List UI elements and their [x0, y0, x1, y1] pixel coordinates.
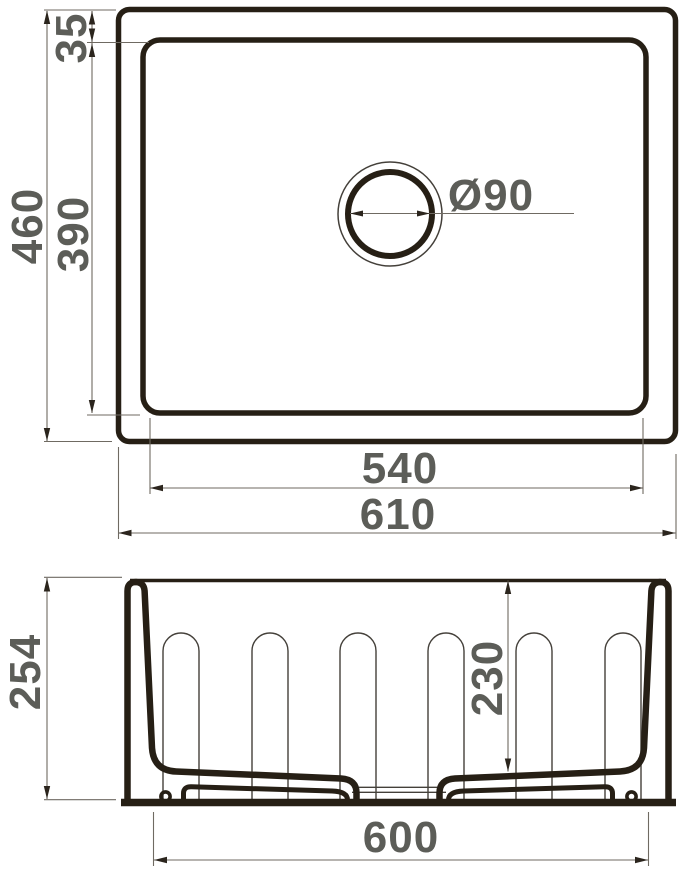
dim-label-overall-height: 254: [1, 634, 50, 710]
dimension-bowl-width: 540: [150, 444, 643, 493]
dimension-bowl-depth: 390: [49, 43, 98, 413]
dimension-rim-offset: 35: [47, 11, 96, 63]
arrow-up: [44, 578, 50, 592]
dim-label-rim-offset: 35: [47, 13, 96, 64]
base-lip-right: [449, 787, 613, 800]
drain-arrow-right: [417, 211, 430, 217]
flute-outline: [605, 633, 641, 801]
arrow-down: [44, 428, 50, 441]
base-lip-left: [184, 787, 348, 800]
left-wall-profile: [128, 582, 357, 802]
arrow-left: [119, 530, 132, 536]
arrow-up: [505, 581, 511, 595]
dimension-base-width: 600: [154, 813, 648, 863]
dim-label-overall-depth: 460: [3, 188, 52, 264]
drain-diameter-label: Ø90: [448, 171, 534, 220]
technical-drawing-canvas: Ø90 460 35 390: [0, 0, 681, 875]
dimension-overall-width: 610: [119, 490, 676, 539]
arrow-right: [635, 857, 648, 863]
bowl-inner-rect: [143, 40, 646, 413]
dim-label-bowl-width: 540: [362, 444, 438, 493]
outer-rim-rect: [119, 10, 676, 442]
dim-label-overall-width: 610: [360, 490, 436, 539]
dim-label-bowl-height: 230: [463, 640, 512, 716]
arrow-left: [150, 485, 163, 491]
dimension-bowl-height: 230: [463, 581, 512, 772]
front-view: 254 230 600: [1, 577, 676, 866]
dim-label-base-width: 600: [363, 813, 439, 862]
dimension-overall-depth: 460: [3, 11, 52, 442]
drain-arrow-left: [350, 211, 363, 217]
dim-label-bowl-depth: 390: [49, 196, 98, 272]
dimension-overall-height: 254: [1, 578, 50, 799]
arrow-down: [44, 786, 50, 799]
arrow-right: [663, 530, 676, 536]
arrow-right: [630, 485, 643, 491]
arrow-down: [505, 759, 511, 772]
arrow-left: [154, 857, 167, 863]
arrow-down: [89, 400, 95, 413]
top-view: Ø90 460 35 390: [3, 10, 676, 540]
flute-outline: [163, 633, 199, 801]
